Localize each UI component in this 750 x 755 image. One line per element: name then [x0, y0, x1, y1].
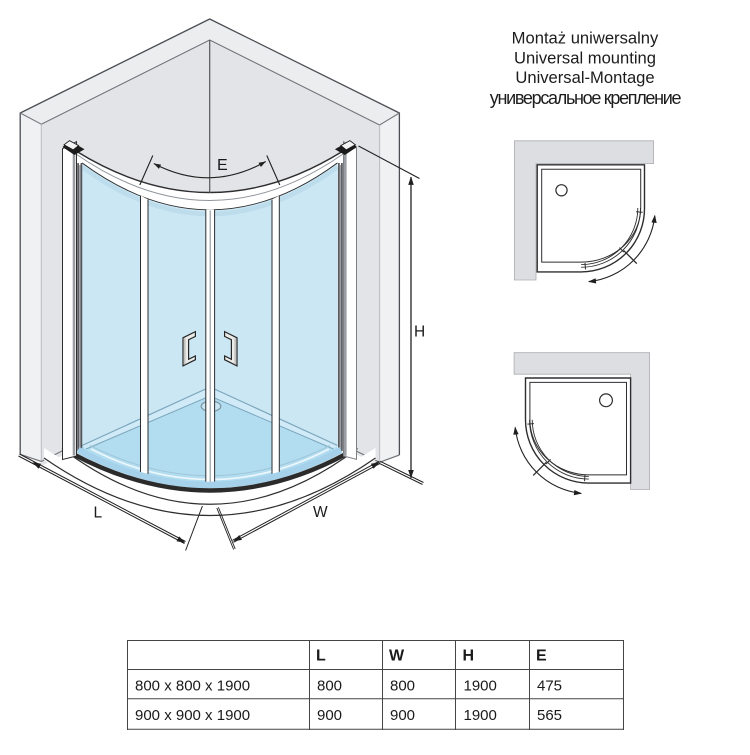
svg-text:800 x 800 x 1900: 800 x 800 x 1900 [135, 677, 250, 694]
svg-text:900: 900 [317, 707, 342, 724]
svg-text:900 x 900 x 1900: 900 x 900 x 1900 [135, 707, 250, 724]
svg-text:565: 565 [537, 707, 562, 724]
svg-text:W: W [389, 648, 405, 665]
svg-text:1900: 1900 [464, 707, 497, 724]
svg-text:800: 800 [317, 677, 342, 694]
svg-text:1900: 1900 [464, 677, 497, 694]
svg-text:H: H [414, 324, 425, 341]
svg-text:Universal mounting: Universal mounting [514, 48, 656, 67]
svg-text:универсальное крепление: универсальное крепление [490, 88, 682, 108]
svg-text:W: W [313, 504, 328, 521]
svg-text:800: 800 [390, 677, 415, 694]
svg-text:L: L [94, 505, 103, 522]
svg-text:E: E [217, 157, 228, 174]
svg-text:H: H [463, 648, 475, 665]
svg-text:475: 475 [537, 677, 562, 694]
svg-text:Montaż uniwersalny: Montaż uniwersalny [512, 29, 659, 48]
svg-text:Universal-Montage: Universal-Montage [515, 68, 654, 87]
svg-text:L: L [316, 648, 326, 665]
svg-text:E: E [536, 648, 547, 665]
svg-text:900: 900 [390, 707, 415, 724]
